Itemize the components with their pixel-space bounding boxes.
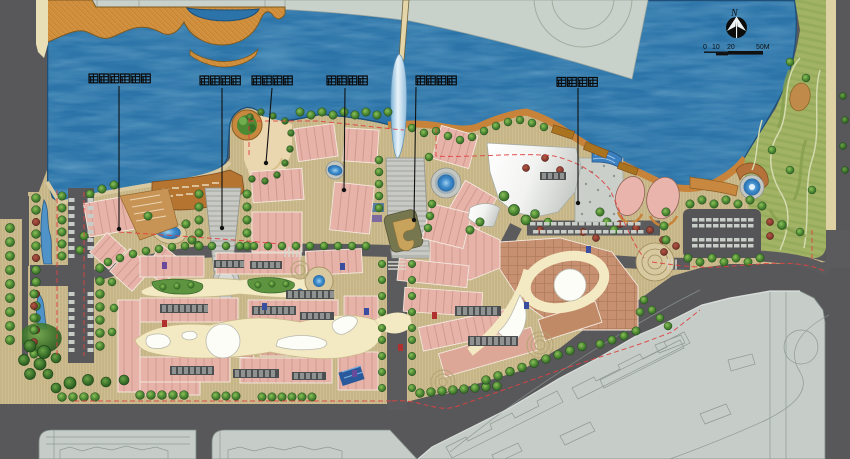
- svg-text:50M: 50M: [756, 44, 770, 51]
- svg-text:0: 0: [703, 44, 707, 51]
- svg-text:10: 10: [712, 44, 720, 51]
- svg-text:20: 20: [727, 44, 735, 51]
